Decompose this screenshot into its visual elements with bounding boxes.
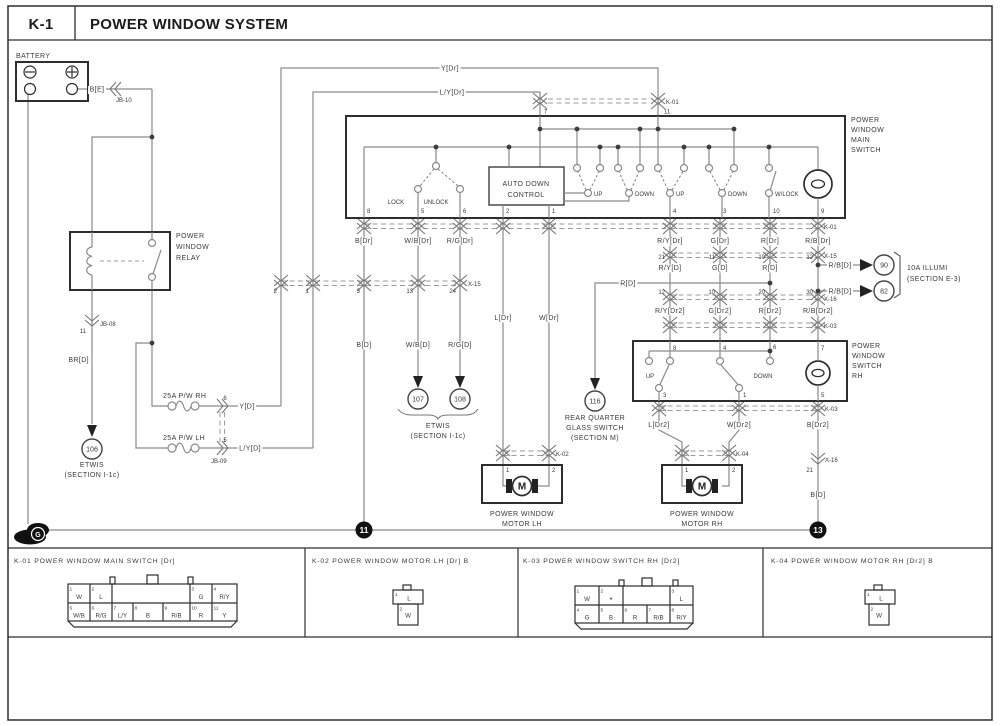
wire-label: L[Dr2] [648,422,669,429]
power-window-main-switch [346,116,845,218]
cell-pin: 3 [192,587,195,593]
auto-down-control-label: CONTROL [507,192,544,199]
cell-pin: 5 [70,606,73,612]
pin-number: 21 [658,255,665,261]
switch-label: LOCK [388,200,404,206]
main-switch-label: POWER [851,117,879,124]
texts: K-1 POWER WINDOW SYSTEM BATTERY B[E] JB-… [14,16,961,622]
switch-label: UP [594,192,602,198]
cell-pin: 4 [577,608,580,614]
minus-terminal-icon [24,66,36,78]
wire-label: B[Dr] [355,238,373,245]
arrow-down-icon [413,376,423,388]
pin-number: 10 [758,255,765,261]
main-switch-label: WINDOW [851,127,884,134]
wire-label: B[E] [90,87,105,94]
arrow-right-icon [860,259,873,271]
wire-label: R/Y[D] [658,265,681,272]
wire-label: R/B[Dr2] [803,308,833,315]
ref-label: (SECTION E-3) [907,276,961,283]
cell-pin: 6 [92,606,95,612]
cell-pin: 6 [625,608,628,614]
rh-switch-label: RH [852,373,863,380]
ref-label: 10A ILLUMI [907,265,948,272]
wire-label: R[Dr] [761,238,779,245]
pin-number: 1 [552,209,556,215]
cell-pin: 8 [672,608,675,614]
rh-switch-label: SWITCH [852,363,882,370]
cell-pin: 5 [601,608,604,614]
footer-section-title: K-03 POWER WINDOW SWITCH RH [Dr2] [523,558,680,565]
wire-label: W[Dr] [539,315,559,322]
motor-label: POWER WINDOW [670,511,734,518]
wire-label: L/Y[D] [239,446,261,453]
lock-switch-linkage [420,169,458,186]
pin-number: 1 [306,289,310,295]
pin-number: 1 [685,468,689,474]
motor-label: POWER WINDOW [490,511,554,518]
wire-label: B[D] [356,342,371,349]
ref-label: (SECTION M) [571,435,619,442]
wire-label: Y[Dr] [441,66,459,73]
wire-label: W/B[D] [406,342,431,349]
wire-label: W[Dr2] [727,422,751,429]
cell-pin: 8 [135,606,138,612]
wire-label: R/B[D] [828,263,851,270]
pin-number: 10 [708,290,715,296]
cell-code: W [876,613,882,620]
circuit-breakers [168,401,199,453]
cell-code: L/Y [118,613,127,620]
switch-label: DOWN [754,374,773,380]
ref-label: (SECTION I-1c) [65,472,120,479]
pin-number: 1 [506,468,510,474]
pin-number: 4 [673,209,677,215]
ground-node-number: 11 [360,525,369,535]
pin-number: 5 [223,438,227,444]
ref-number: 116 [589,399,600,406]
reference-points [82,252,900,459]
wire-label: L[Dr] [494,315,511,322]
wire-label: BR[D] [68,357,89,364]
pin-number: 6 [773,345,777,351]
ground-node-number: 13 [813,525,823,535]
cell-pin: 1 [395,592,398,598]
cell-pin: 7 [114,606,117,612]
connector-label: X-16 [825,458,838,464]
cell-pin: 3 [672,589,675,595]
cell-pin: 1 [70,587,73,593]
cell-code: R [633,615,638,622]
pin-number: 3 [357,289,361,295]
cell-pin: 2 [400,607,403,613]
page-title: POWER WINDOW SYSTEM [90,16,288,33]
pin-number: 2 [506,209,510,215]
wire-label: G[D] [712,265,728,272]
ref-label: GLASS SWITCH [566,425,624,432]
motor-label: MOTOR LH [502,521,542,528]
cell-pin: 7 [649,608,652,614]
wire-label: W/B[Dr] [404,238,431,245]
page-code: K-1 [28,16,53,33]
wire-label: G[Dr2] [708,308,731,315]
switch-label: UP [646,374,654,380]
motor-label: MOTOR RH [681,521,722,528]
pin-number: 13 [406,289,413,295]
ref-label: (SECTION I-1c) [411,433,466,440]
pin-number: 9 [821,209,825,215]
auto-down-control-label: AUTO DOWN [502,181,549,188]
connector-label: K-01 [666,100,679,106]
pin-number: 2 [274,289,278,295]
connector-label: X-15 [824,254,837,260]
wire-label: R[D] [762,265,778,272]
connector-label: K-02 [556,452,569,458]
connector-label: X-15 [468,282,481,288]
pin-number: 11 [80,329,87,335]
relay-coil-icon [87,247,92,275]
main-switch-label: SWITCH [851,147,881,154]
pin-number: 3 [663,393,667,399]
connector-label: K-03 [825,407,838,413]
cell-code: L [879,596,883,603]
k01-connector-drawing [68,575,237,627]
relay-label: RELAY [176,255,200,262]
cell-code: R/B [171,613,181,620]
bracket [894,252,900,298]
arrow-down-icon [87,425,97,437]
battery [16,62,88,101]
pin-number: 12 [806,255,813,261]
ground-symbol-icon [14,523,49,545]
cell-code: W [405,613,411,620]
ref-number: 90 [880,263,888,270]
switch-label: DOWN [728,192,747,198]
cell-code: W/B [73,613,85,620]
cell-pin: 2 [601,589,604,595]
rh-switch-label: POWER [852,343,880,350]
cell-code: R/Y [676,615,686,622]
cell-code: G [199,594,204,601]
connector-label: X-16 [824,297,837,303]
lamp-icon [806,361,830,385]
wire-label: R/Y[Dr] [657,238,683,245]
cell-code: L [680,596,684,603]
cell-pin: 2 [92,587,95,593]
cell-code: L [99,594,103,601]
relay-label: WINDOW [176,244,209,251]
wire-label: R/G[D] [448,342,472,349]
connector-label: JB-08 [100,322,116,328]
pin-number: 1 [743,393,747,399]
pin-number: 6 [223,396,227,402]
ref-number: 106 [86,447,98,454]
plus-terminal-icon [66,66,78,78]
cell-code: W [76,594,82,601]
pin-number: 21 [806,468,813,474]
wire-label: L/Y[Dr] [440,90,465,97]
pin-number: 2 [732,468,736,474]
pin-number: 7 [544,110,548,116]
cell-code: B [609,615,613,622]
connector-label: JB-10 [116,98,132,104]
wire-label: R/B[D] [828,289,851,296]
battery-label: BATTERY [16,53,50,60]
ref-number: 82 [880,289,888,296]
wire-label: R[Dr2] [759,308,782,315]
wire-label: R/G[Dr] [447,238,474,245]
pin-number: 7 [821,346,825,352]
pin-number: 20 [758,290,765,296]
wire-label: B[D] [810,492,825,499]
connector-label: K-04 [736,452,749,458]
cell-code: B [146,613,150,620]
rh-switch-label: WINDOW [852,353,885,360]
brace [398,409,478,419]
main-switch-label: MAIN [851,137,870,144]
switch-label: W/LOCK [775,192,799,198]
pin-number: 10 [773,209,780,215]
pin-number: 5 [421,209,425,215]
footer-section-title: K-01 POWER WINDOW MAIN SWITCH [Dr] [14,558,175,565]
cell-pin: 11 [214,606,219,612]
connector-label: K-03 [824,324,837,330]
breaker-label: 25A P/W RH [163,393,206,400]
wiring-diagram: K-1 POWER WINDOW SYSTEM BATTERY B[E] JB-… [0,0,1000,726]
cell-code: W [584,596,590,603]
wire-label: R[D] [620,281,636,288]
ref-number: 107 [412,397,424,404]
cell-pin: 1 [577,589,580,595]
switch-label: UP [676,192,684,198]
pin-number: 30 [806,290,813,296]
pin-number: 3 [723,209,727,215]
cell-code: G [585,615,590,622]
arrow-down-icon [455,376,465,388]
footer-section-title: K-04 POWER WINDOW MOTOR RH [Dr2] B [771,558,934,565]
arrow-right-icon [860,285,873,297]
arrow-down-icon [590,378,600,390]
pin-number: 6 [463,209,467,215]
cell-code: L [407,596,411,603]
cell-code: Y [222,613,226,620]
connector-label: K-01 [824,225,837,231]
wire-label: R/B[Dr] [805,238,831,245]
ground-letter: G [35,532,41,539]
switch-label: UNLOCK [423,200,448,206]
pin-number: 24 [449,289,456,295]
connector-label: JB-09 [211,459,227,465]
pin-number: 11 [709,255,716,261]
cell-code: R/G [95,613,106,620]
wire-label: Y[D] [239,404,254,411]
cell-code: * [609,596,612,605]
footer-section-title: K-02 POWER WINDOW MOTOR LH [Dr] B [312,558,469,565]
cell-pin: 4 [214,587,217,593]
cell-pin: 10 [192,606,198,612]
cell-pin: 2 [871,607,874,613]
relay-label: POWER [176,233,204,240]
wire-label: B[Dr2] [807,422,829,429]
ref-label: REAR QUARTER [565,415,625,422]
footer-connectors [68,575,895,629]
breaker-label: 25A P/W LH [163,435,205,442]
power-window-switch-rh [633,341,847,401]
motor-m: M [518,482,526,493]
cell-code: R/Y [219,594,229,601]
cell-pin: 9 [165,606,168,612]
switch-label: DOWN [635,192,654,198]
pin-number: 5 [821,393,825,399]
ref-number: 108 [454,397,466,404]
cell-code: R [199,613,204,620]
wire-label: R/Y[Dr2] [655,308,685,315]
page-frame [8,6,992,720]
cell-code: R/B [653,615,663,622]
pin-number: 11 [664,110,671,116]
pin-number: 2 [552,468,556,474]
ref-label: ETWIS [426,423,450,430]
lamp-icon [804,170,832,198]
motor-m: M [698,482,706,493]
pin-number: 8 [367,209,371,215]
pin-number: 12 [658,290,665,296]
ref-label: ETWIS [80,462,104,469]
cell-pin: 1 [867,592,870,598]
power-window-relay [70,232,170,290]
wire-label: G[Dr] [711,238,730,245]
